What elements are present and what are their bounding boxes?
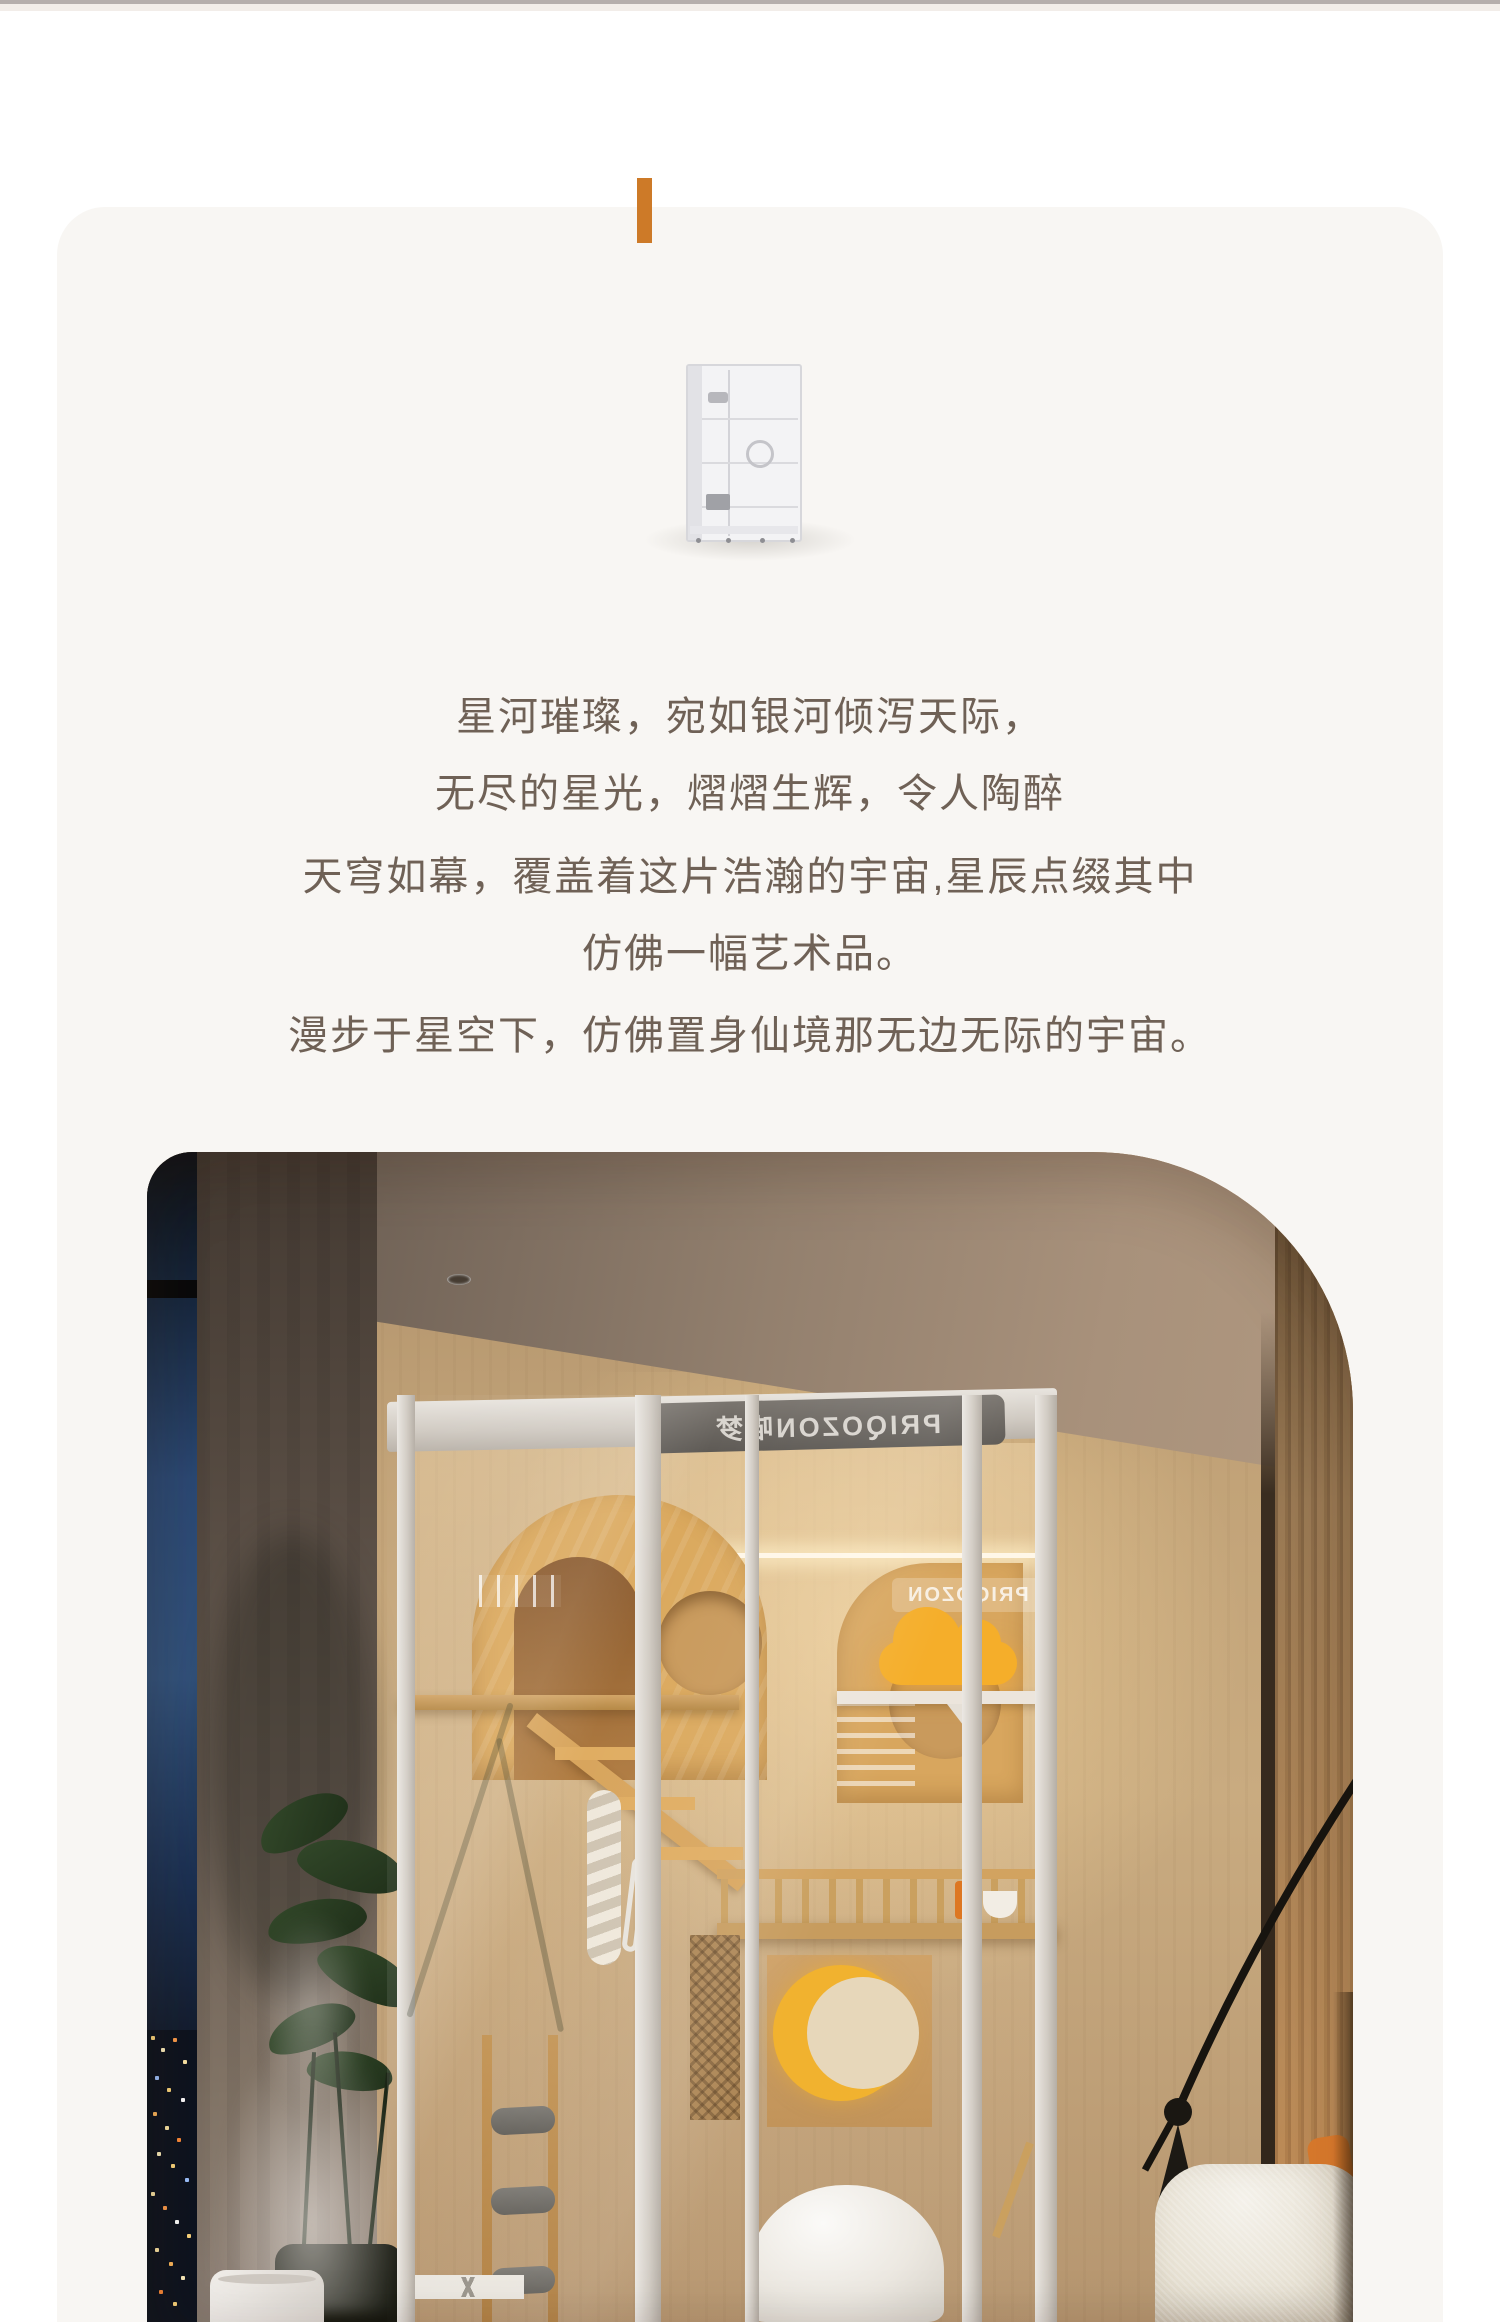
intro-line-3: 天穹如幕，覆盖着这片浩瀚的宇宙,星辰点缀其中: [60, 844, 1440, 902]
intro-line-1: 星河璀璨，宛如银河倾泻天际，: [60, 684, 1440, 742]
intro-line-2: 无尽的星光，熠熠生辉，令人陶醉: [60, 761, 1440, 819]
cabinet-shelf: [702, 418, 798, 420]
cabinet-cushion: [708, 392, 728, 403]
cat-cabinet-illustration: [686, 364, 802, 542]
lamp-ball-joint: [1164, 2098, 1192, 2126]
caster-wheel: [726, 538, 731, 543]
lamp-arc: [1178, 1780, 1353, 2110]
product-render: [640, 358, 860, 563]
caster-wheel: [790, 538, 795, 543]
product-detail-section: 星河璀璨，宛如银河倾泻天际， 无尽的星光，熠熠生辉，令人陶醉 天穹如幕，覆盖着这…: [0, 0, 1500, 2322]
room-photo: PRIQOZON: [147, 1152, 1353, 2322]
right-edge-shadow: [1333, 1992, 1353, 2322]
pouf-texture: [1155, 2164, 1353, 2322]
cabinet-wheel: [746, 440, 774, 468]
boucle-pouf: [1155, 2164, 1353, 2322]
cabinet-door-split: [728, 370, 730, 536]
top-divider-shadow: [0, 4, 1500, 11]
cabinet-base: [690, 526, 798, 534]
intro-line-4: 仿佛一幅艺术品。: [60, 921, 1440, 979]
cabinet-drawer: [706, 494, 730, 510]
intro-line-5: 漫步于星空下，仿佛置身仙境那无边无际的宇宙。: [60, 1003, 1440, 1061]
floor-lamp: [147, 1152, 1353, 2322]
cabinet-side-panel: [688, 366, 702, 540]
caster-wheel: [696, 538, 701, 543]
accent-bar: [637, 178, 652, 243]
caster-wheel: [760, 538, 765, 543]
